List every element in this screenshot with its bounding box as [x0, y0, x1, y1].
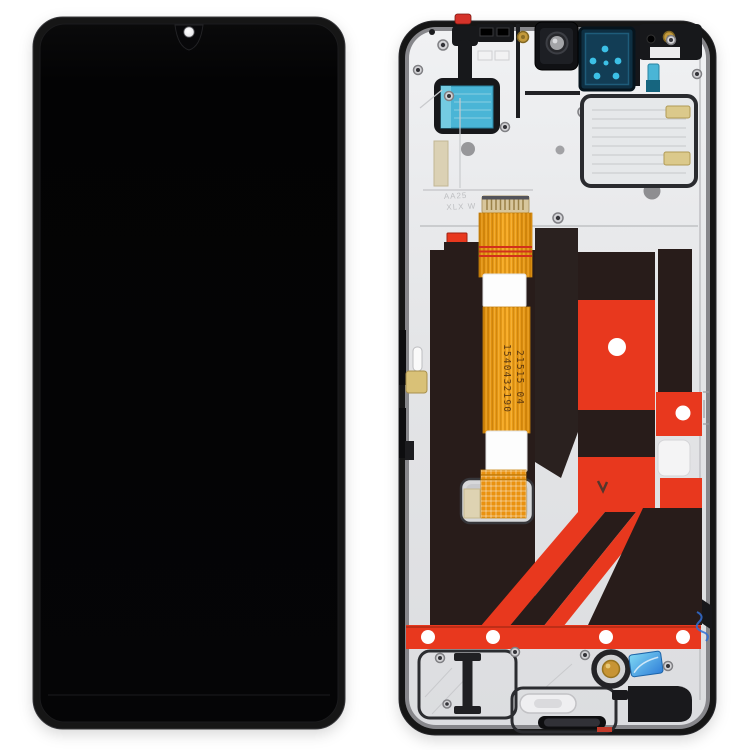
flex-sticker-upper — [483, 274, 526, 307]
front-screen — [40, 24, 338, 722]
camera-lens-icon — [550, 36, 564, 50]
speaker-block — [628, 686, 692, 722]
speaker-block-tab — [612, 690, 628, 700]
product-photo: AA25 XLX W — [0, 0, 750, 750]
plate-marking-1: AA25 — [444, 191, 468, 201]
beige-sticker — [434, 141, 448, 186]
camera-hologram-sticker — [580, 28, 634, 90]
usb-port-inner — [534, 699, 562, 708]
photo-canvas: AA25 XLX W — [0, 0, 750, 750]
back-assembly: AA25 XLX W — [399, 14, 716, 735]
front-assembly — [33, 17, 345, 729]
camera-module — [535, 22, 578, 70]
hologram-sticker-small — [629, 651, 664, 677]
plate-marking-2: XLX W — [446, 201, 476, 212]
front-camera-icon — [184, 27, 194, 37]
cream-tab — [464, 489, 480, 518]
flex-serial-2: 21515 04 — [514, 350, 525, 405]
adhesive-panel-center — [535, 228, 578, 478]
bottom-red-mark — [597, 727, 612, 732]
teal-sticker-piece — [646, 80, 660, 92]
battery-recess — [582, 96, 696, 186]
flex-serial-1: 1540432190 — [501, 344, 512, 413]
flex-sticker-lower — [486, 431, 527, 472]
top-red-tab — [455, 14, 471, 24]
bottom-adhesive-strip — [406, 625, 701, 649]
earpiece-adhesive-pad — [434, 78, 500, 134]
camera-ring — [594, 652, 628, 686]
adhesive-strip-middle — [578, 252, 655, 512]
charging-port-slot-inner — [544, 719, 600, 727]
